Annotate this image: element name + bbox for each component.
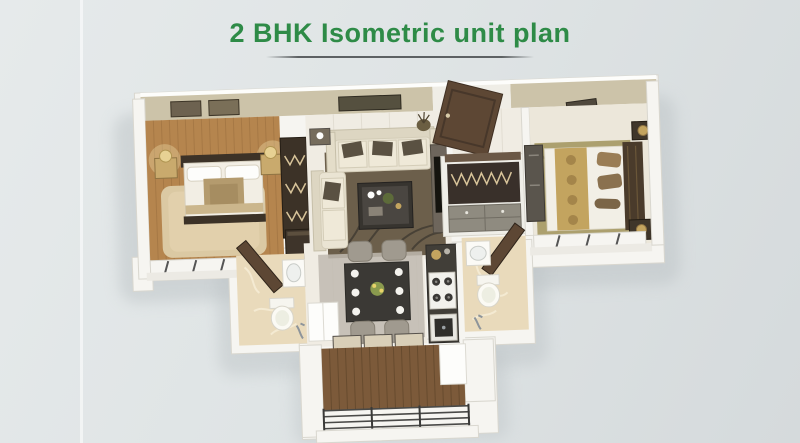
sofa-two-seater	[311, 170, 348, 251]
storage-box	[439, 344, 466, 385]
wardrobe	[524, 145, 545, 222]
slide-background: 2 BHK Isometric unit plan	[0, 0, 800, 443]
basin	[470, 246, 486, 261]
bolster	[594, 198, 620, 209]
gas-stove-icon	[429, 272, 456, 309]
picture-frame-icon	[171, 101, 202, 117]
parapet-left	[299, 345, 324, 438]
table-top	[362, 186, 409, 226]
picture-frame-icon	[209, 100, 240, 116]
throw-pillow	[402, 139, 424, 156]
bed	[544, 141, 645, 232]
sink	[282, 259, 305, 287]
pillow	[596, 151, 621, 167]
window-band	[530, 231, 653, 255]
header: 2 BHK Isometric unit plan	[0, 18, 800, 58]
window-band	[146, 257, 247, 280]
painting-icon	[339, 95, 401, 111]
dining-chair	[382, 240, 407, 261]
dining-chair	[348, 241, 373, 262]
title-divider	[266, 56, 534, 58]
parapet-right	[463, 339, 495, 402]
common-bathroom	[461, 223, 529, 332]
sofa-three-seater	[326, 127, 440, 175]
coffee-table	[358, 182, 414, 230]
toilet-icon	[270, 298, 295, 331]
lamp-icon	[264, 146, 276, 158]
seat-cushion	[323, 210, 346, 241]
dining-area	[306, 239, 425, 345]
runner-pattern	[210, 184, 239, 207]
decor-tray	[368, 207, 382, 216]
second-bedroom	[522, 81, 664, 256]
double-bed	[181, 153, 267, 225]
master-bathroom	[236, 239, 308, 346]
page-title: 2 BHK Isometric unit plan	[0, 18, 800, 49]
sink	[466, 241, 491, 266]
headboard	[622, 141, 645, 230]
throw-pillow	[372, 141, 393, 156]
kitchen	[426, 244, 465, 343]
lamp-icon	[638, 125, 648, 135]
throw-pillow	[323, 181, 341, 201]
lamp-icon	[159, 150, 171, 162]
floor-plan-illustration	[0, 0, 800, 443]
toilet-icon	[477, 275, 500, 308]
basin	[286, 263, 301, 281]
kitchen-sink-icon	[430, 314, 457, 341]
